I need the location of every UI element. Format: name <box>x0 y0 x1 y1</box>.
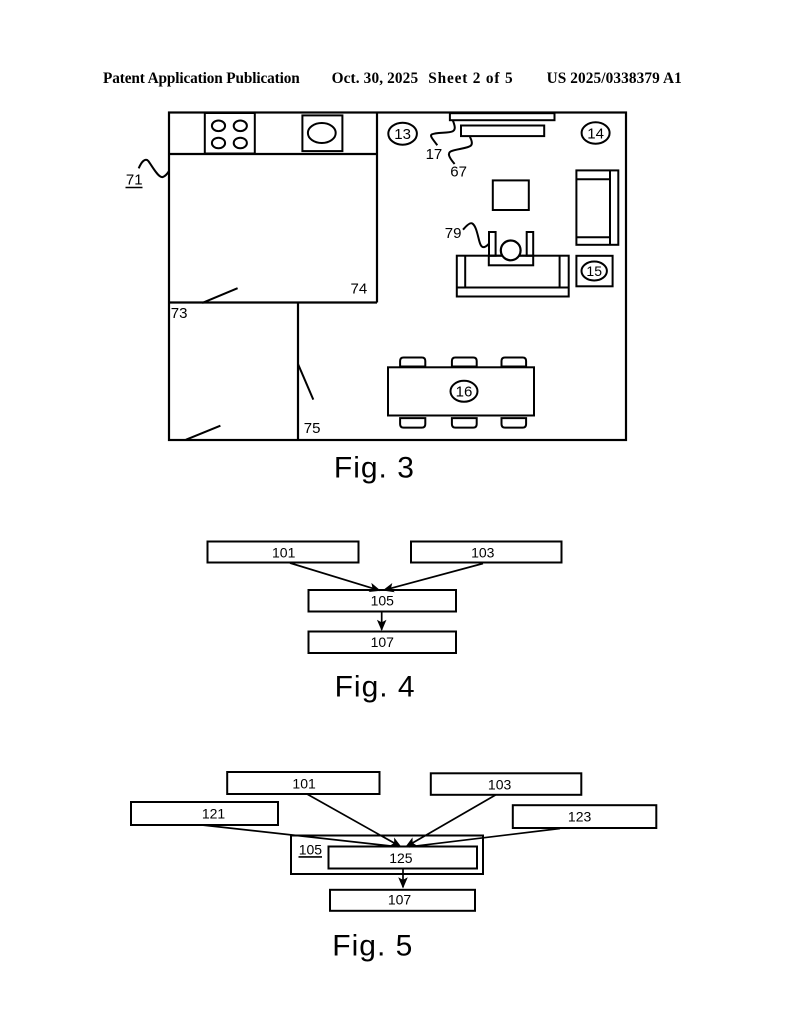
svg-text:Sheet 2 of 5: Sheet 2 of 5 <box>428 70 513 87</box>
svg-text:105: 105 <box>371 593 395 609</box>
svg-text:103: 103 <box>488 777 512 793</box>
svg-text:67: 67 <box>450 164 467 181</box>
svg-text:14: 14 <box>587 125 604 142</box>
svg-text:105: 105 <box>299 841 323 857</box>
svg-text:73: 73 <box>171 305 188 322</box>
svg-text:Patent Application Publication: Patent Application Publication <box>103 70 300 87</box>
svg-text:Fig. 3: Fig. 3 <box>334 452 415 485</box>
svg-text:125: 125 <box>389 850 413 866</box>
svg-text:15: 15 <box>586 263 602 279</box>
svg-text:123: 123 <box>568 808 592 824</box>
svg-text:13: 13 <box>394 126 411 143</box>
svg-text:Oct. 30, 2025: Oct. 30, 2025 <box>332 70 419 87</box>
svg-text:79: 79 <box>445 225 462 242</box>
svg-text:16: 16 <box>456 384 473 401</box>
svg-text:US 2025/0338379 A1: US 2025/0338379 A1 <box>547 70 682 87</box>
svg-text:103: 103 <box>471 544 495 560</box>
svg-text:107: 107 <box>371 634 395 650</box>
svg-text:101: 101 <box>292 775 316 791</box>
svg-text:Fig. 5: Fig. 5 <box>332 929 413 962</box>
svg-text:17: 17 <box>426 146 443 163</box>
svg-text:71: 71 <box>126 172 143 189</box>
svg-text:Fig. 4: Fig. 4 <box>335 670 416 703</box>
svg-text:74: 74 <box>351 281 368 298</box>
svg-text:107: 107 <box>388 892 412 908</box>
svg-text:121: 121 <box>202 805 226 821</box>
svg-text:101: 101 <box>272 544 296 560</box>
svg-text:75: 75 <box>304 420 321 437</box>
